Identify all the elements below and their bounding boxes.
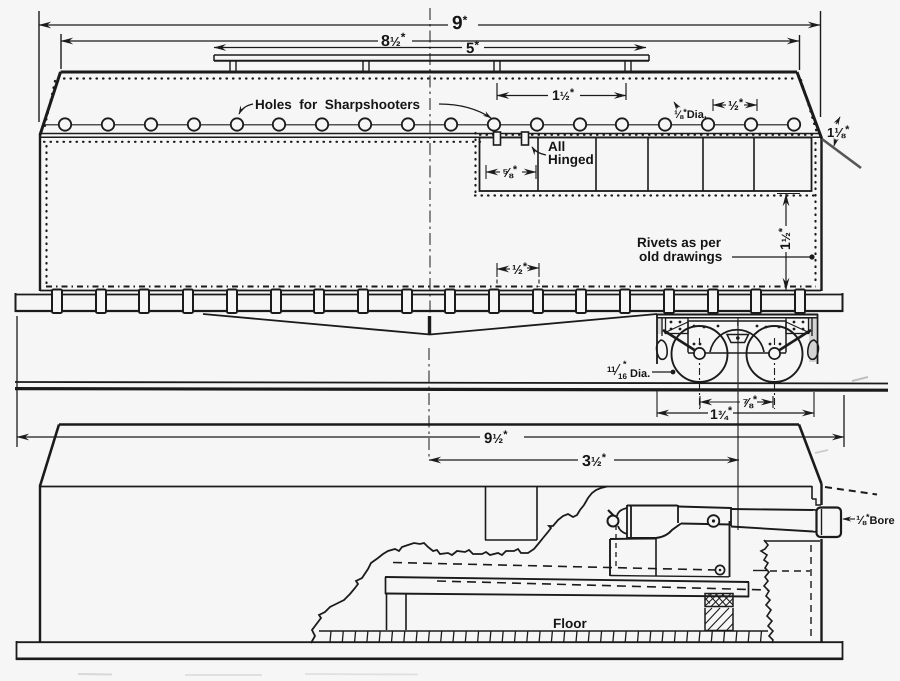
- svg-text:Floor: Floor: [553, 616, 587, 631]
- svg-text:9*: 9*: [452, 13, 468, 34]
- svg-text:1⅛*: 1⅛*: [827, 124, 850, 140]
- svg-text:⅞*: ⅞*: [742, 394, 758, 410]
- svg-text:½*: ½*: [512, 261, 528, 277]
- svg-text:16: 16: [618, 372, 627, 381]
- svg-text:1¾*: 1¾*: [710, 405, 733, 422]
- svg-text:old drawings: old drawings: [639, 249, 722, 264]
- svg-text:11: 11: [607, 365, 616, 374]
- svg-text:Dia.: Dia.: [630, 368, 650, 380]
- svg-text:⅛*Bore: ⅛*Bore: [856, 512, 895, 527]
- svg-text:1½*: 1½*: [552, 87, 575, 103]
- svg-text:⅝*: ⅝*: [502, 164, 518, 180]
- svg-text:3½*: 3½*: [582, 452, 607, 470]
- svg-text:*: *: [623, 359, 627, 369]
- svg-text:⅛*Dia.: ⅛*Dia.: [674, 107, 707, 121]
- svg-text:½*: ½*: [728, 97, 744, 113]
- svg-text:1½*: 1½*: [777, 227, 793, 250]
- svg-text:Holes for Sharpshooters: Holes for Sharpshooters: [255, 97, 420, 112]
- svg-text:9½*: 9½*: [484, 429, 508, 447]
- svg-text:5*: 5*: [466, 38, 479, 57]
- svg-text:Hinged: Hinged: [548, 152, 594, 167]
- svg-text:Rivets as per: Rivets as per: [637, 235, 722, 250]
